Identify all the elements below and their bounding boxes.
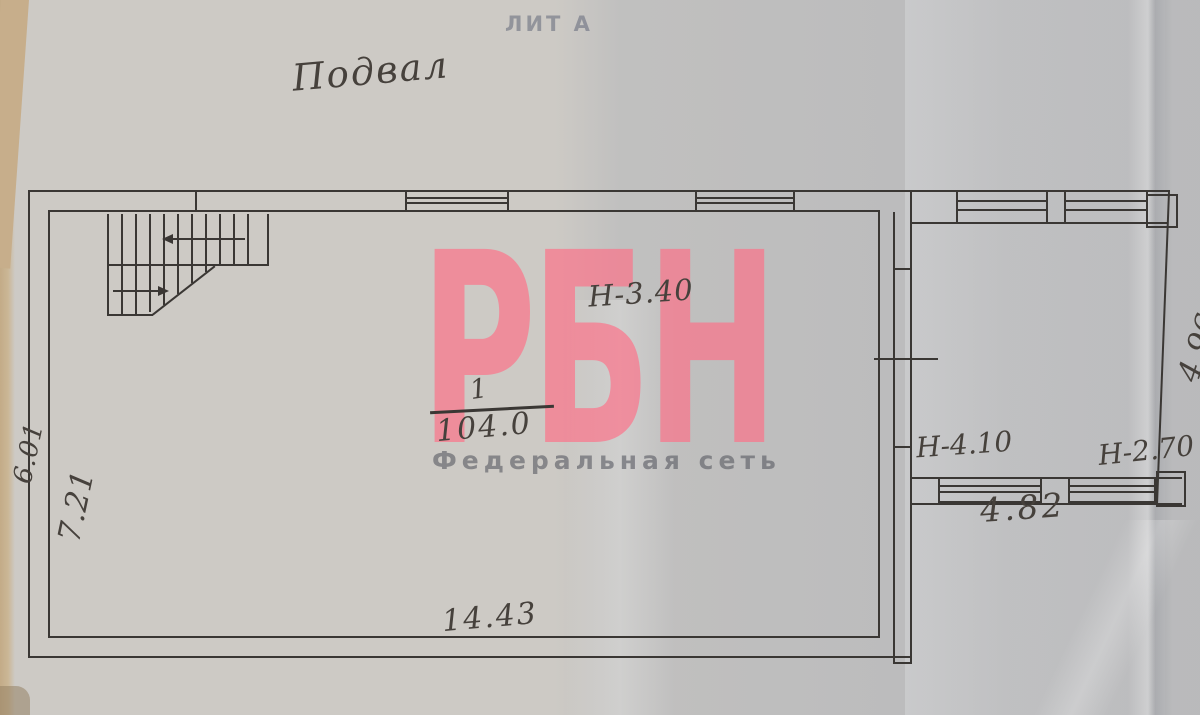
paper-corner-shadow	[0, 686, 30, 715]
right-room-height-right: Н-2.70	[1097, 429, 1196, 472]
window-right-bottom-2	[1068, 477, 1156, 503]
stair-tread	[121, 214, 123, 264]
right-room-height-left: Н-4.10	[915, 425, 1013, 465]
fold-highlight-right-page	[905, 0, 1165, 715]
stair-tread	[149, 214, 151, 264]
stair-right-edge	[267, 214, 269, 266]
stair-tread	[205, 266, 207, 272]
window-main-2	[695, 190, 795, 212]
stair-tread	[135, 214, 137, 264]
dimension-depth-outer: 6.01	[8, 420, 50, 487]
stair-up-arrow-icon	[162, 234, 173, 244]
stair-up-arrow-line	[173, 238, 245, 240]
stair-tread	[247, 214, 249, 264]
stair-down-arrow-icon	[158, 286, 169, 296]
crease-right	[1128, 0, 1172, 715]
window-end-box-top	[1146, 194, 1178, 228]
stair-mid-landing-line	[107, 264, 269, 266]
partition-joint-2	[895, 446, 910, 448]
paper-edge-left	[0, 0, 15, 715]
wall-joint	[195, 190, 197, 210]
partition-wall-right-line	[910, 190, 912, 664]
partition-wall-left-line	[893, 212, 895, 664]
window-end-box-bottom	[1156, 471, 1186, 507]
lit-label: ЛИТ А	[505, 12, 593, 36]
window-right-top-1	[956, 190, 1048, 224]
stair-tread	[177, 266, 179, 294]
dimension-width-right: 4.82	[979, 485, 1067, 530]
floor-title: Подвал	[290, 43, 450, 100]
paper-edge-left-top	[0, 0, 30, 269]
stair-down-arrow-line	[113, 290, 159, 292]
crease-bottom-right	[1000, 520, 1200, 715]
partition-joint-1	[895, 268, 910, 270]
window-right-top-2	[1064, 190, 1148, 224]
partition-bottom-cap	[893, 662, 912, 664]
dimension-tick	[874, 358, 938, 360]
outer-wall-bottom	[28, 656, 912, 658]
staircase	[55, 214, 271, 318]
window-main-1	[405, 190, 509, 212]
stair-bottom-line	[107, 314, 153, 316]
dimension-right-edge: 4.96	[1171, 310, 1200, 387]
stair-tread	[191, 266, 193, 283]
stair-tread	[149, 266, 151, 312]
